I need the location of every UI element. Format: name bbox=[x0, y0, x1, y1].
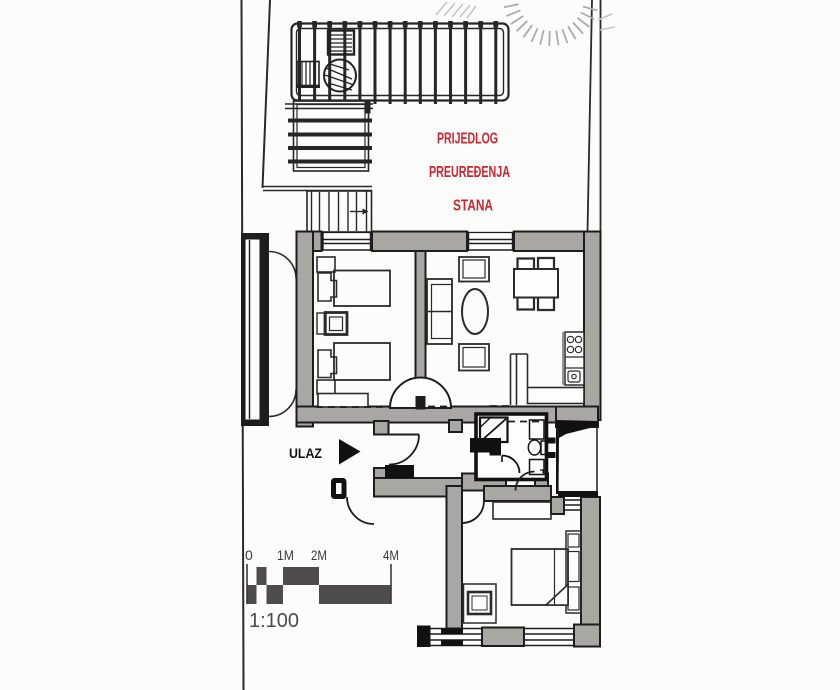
svg-text:PRIJEDLOG: PRIJEDLOG bbox=[437, 131, 498, 148]
svg-text:4M: 4M bbox=[383, 547, 399, 563]
svg-text:ULAZ: ULAZ bbox=[289, 446, 322, 461]
svg-text:1M: 1M bbox=[277, 547, 294, 563]
svg-text:STANA: STANA bbox=[453, 198, 493, 215]
svg-text:PREUREĐENJA: PREUREĐENJA bbox=[429, 164, 510, 181]
svg-text:2M: 2M bbox=[311, 547, 327, 563]
svg-text:1:100: 1:100 bbox=[249, 609, 299, 632]
svg-text:0: 0 bbox=[245, 547, 253, 563]
